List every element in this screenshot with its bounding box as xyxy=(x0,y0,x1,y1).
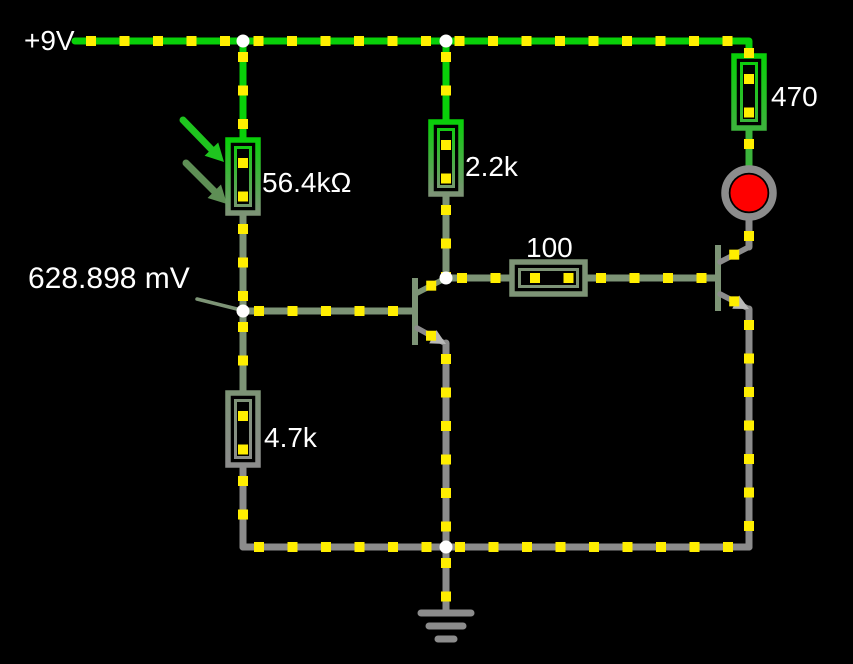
resistor-470-value-label: 470 xyxy=(771,81,818,112)
resistor-2.2k-value-label: 2.2k xyxy=(465,151,519,182)
current-dot xyxy=(238,322,248,332)
light-arrow-icon-1 xyxy=(183,120,224,162)
current-dot xyxy=(238,52,248,62)
current-dot xyxy=(530,273,540,283)
current-dot xyxy=(656,36,666,46)
current-dot xyxy=(238,510,248,520)
current-dot xyxy=(388,36,398,46)
current-dot xyxy=(744,421,754,431)
junction-dot xyxy=(440,541,453,554)
current-dot xyxy=(589,36,599,46)
current-dot xyxy=(421,36,431,46)
light-arrow-icon-2 xyxy=(186,163,227,204)
current-dot xyxy=(238,224,248,234)
current-dot xyxy=(287,36,297,46)
current-dot xyxy=(238,192,248,202)
current-dot xyxy=(455,36,465,46)
photoresistor-56.4k[interactable] xyxy=(228,140,258,213)
current-dot xyxy=(744,488,754,498)
current-dot xyxy=(663,273,673,283)
light-arrow-shaft xyxy=(183,120,212,150)
current-dot xyxy=(238,445,248,455)
current-dot xyxy=(220,36,230,46)
junction-dot xyxy=(440,35,453,48)
current-dot xyxy=(656,542,666,552)
current-dot xyxy=(729,250,739,260)
current-dot xyxy=(354,36,364,46)
current-dot xyxy=(238,258,248,268)
current-dot xyxy=(238,158,248,168)
current-dot xyxy=(491,273,501,283)
current-dot xyxy=(455,542,465,552)
circuit-canvas[interactable]: +9V 56.4kΩ 2.2k 470 100 4.7k 628.898 mV xyxy=(0,0,853,664)
current-dot xyxy=(238,119,248,129)
current-dot xyxy=(457,273,467,283)
current-dot xyxy=(522,542,532,552)
current-dot xyxy=(522,36,532,46)
current-dot xyxy=(630,273,640,283)
current-dot xyxy=(441,388,451,398)
current-dot xyxy=(441,205,451,215)
junction-dot xyxy=(440,272,453,285)
current-dot xyxy=(441,239,451,249)
current-dot xyxy=(238,411,248,421)
ground-symbol[interactable] xyxy=(421,613,471,639)
current-dot xyxy=(441,354,451,364)
current-dot xyxy=(729,296,739,306)
wire-supply-rail[interactable] xyxy=(75,41,749,56)
current-dot xyxy=(744,74,754,84)
probe-voltage-label: 628.898 mV xyxy=(28,262,190,295)
current-dot xyxy=(744,139,754,149)
current-dot xyxy=(690,542,700,552)
current-dot xyxy=(388,542,398,552)
resistor-4.7k-value-label: 4.7k xyxy=(264,422,318,453)
current-dot xyxy=(441,488,451,498)
current-dot xyxy=(623,542,633,552)
current-dot xyxy=(86,36,96,46)
current-dot xyxy=(441,592,451,602)
current-dot xyxy=(589,542,599,552)
current-dot xyxy=(697,273,707,283)
current-dot xyxy=(441,522,451,532)
current-dot xyxy=(238,356,248,366)
current-dot xyxy=(744,521,754,531)
current-dot xyxy=(744,454,754,464)
current-dot xyxy=(355,542,365,552)
current-dot xyxy=(254,306,264,316)
current-dot xyxy=(288,542,298,552)
current-dot xyxy=(744,387,754,397)
current-dot xyxy=(120,36,130,46)
resistor-100[interactable] xyxy=(512,262,585,294)
current-dot xyxy=(723,36,733,46)
current-dot xyxy=(441,421,451,431)
current-dot xyxy=(441,52,451,62)
current-dot xyxy=(489,542,499,552)
current-dot xyxy=(288,306,298,316)
current-dot xyxy=(441,174,451,184)
current-dot xyxy=(441,558,451,568)
current-dot xyxy=(238,86,248,96)
current-dot xyxy=(254,542,264,552)
photoresistor-value-label: 56.4kΩ xyxy=(262,167,351,198)
current-dot xyxy=(441,140,451,150)
current-dot xyxy=(187,36,197,46)
current-dot xyxy=(555,36,565,46)
led-indicator[interactable] xyxy=(725,169,773,217)
current-dot xyxy=(422,542,432,552)
current-dot xyxy=(321,36,331,46)
current-dot xyxy=(744,48,754,58)
current-dot xyxy=(153,36,163,46)
current-dot xyxy=(744,354,754,364)
current-dot xyxy=(744,320,754,330)
current-dot xyxy=(723,542,733,552)
current-dot xyxy=(238,476,248,486)
current-dot xyxy=(321,306,331,316)
current-dot xyxy=(254,36,264,46)
current-dot xyxy=(426,281,436,291)
junction-dot xyxy=(237,305,250,318)
current-dot xyxy=(564,273,574,283)
current-dot xyxy=(426,331,436,341)
current-dot xyxy=(238,291,248,301)
current-dot xyxy=(689,36,699,46)
current-dot xyxy=(441,86,451,96)
light-arrow-shaft xyxy=(186,163,215,192)
current-dot xyxy=(596,273,606,283)
current-dot xyxy=(622,36,632,46)
current-dot xyxy=(388,306,398,316)
current-dot xyxy=(355,306,365,316)
current-dot xyxy=(744,108,754,118)
current-dot xyxy=(556,542,566,552)
probe-pointer-line xyxy=(197,299,241,310)
current-dot xyxy=(441,455,451,465)
supply-voltage-label: +9V xyxy=(24,25,75,56)
current-dot xyxy=(744,231,754,241)
current-dot xyxy=(488,36,498,46)
resistor-100-value-label: 100 xyxy=(526,232,573,263)
junction-dot xyxy=(237,35,250,48)
current-dot xyxy=(321,542,331,552)
